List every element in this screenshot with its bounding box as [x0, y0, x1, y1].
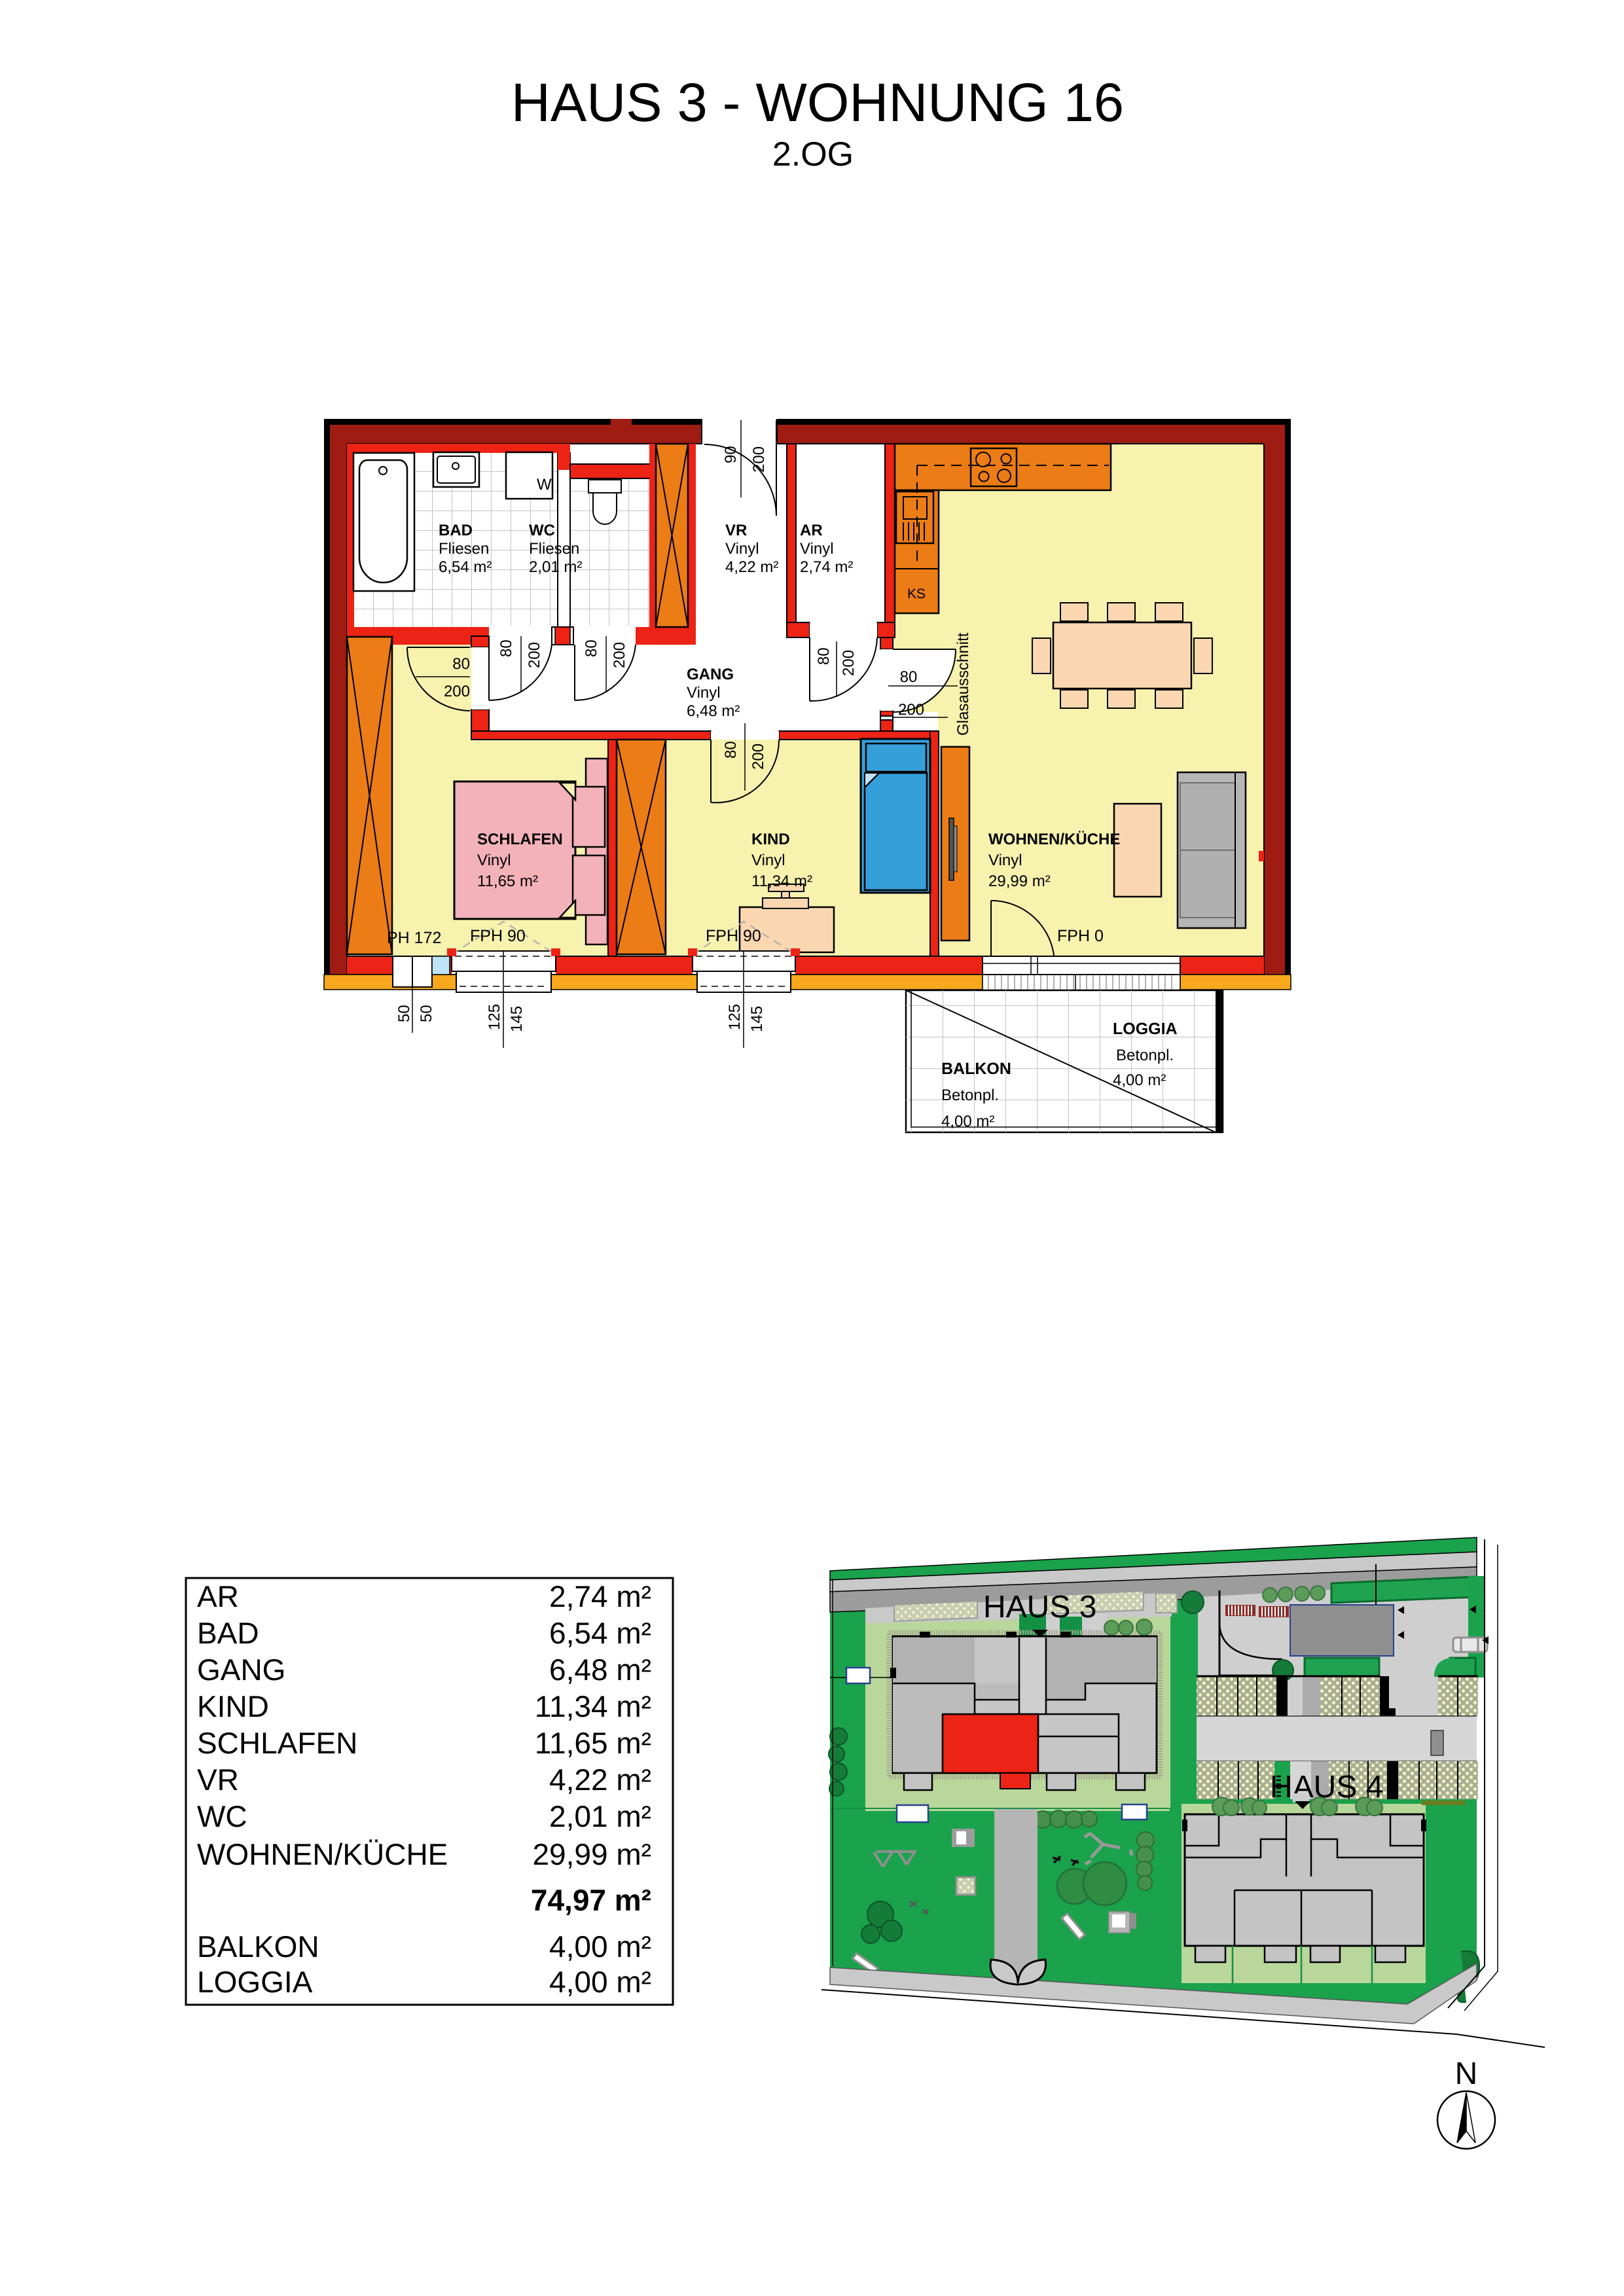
svg-text:WC: WC [529, 522, 555, 539]
svg-text:KIND: KIND [751, 831, 790, 848]
svg-text:Betonpl.: Betonpl. [941, 1086, 999, 1104]
svg-text:200: 200 [750, 446, 768, 473]
svg-text:200: 200 [444, 683, 470, 700]
svg-text:LOGGIA: LOGGIA [197, 1965, 313, 1999]
svg-text:FPH 0: FPH 0 [1057, 927, 1104, 945]
svg-text:11,65 m²: 11,65 m² [477, 872, 538, 890]
svg-text:6,48 m²: 6,48 m² [549, 1653, 651, 1687]
svg-text:4,22 m²: 4,22 m² [725, 558, 778, 576]
svg-text:4,00 m²: 4,00 m² [1113, 1071, 1166, 1089]
svg-text:BALKON: BALKON [941, 1060, 1011, 1078]
svg-text:FPH 90: FPH 90 [470, 927, 526, 945]
svg-text:4,00 m²: 4,00 m² [941, 1113, 994, 1130]
svg-text:80: 80 [497, 639, 515, 657]
svg-text:Vinyl: Vinyl [751, 852, 785, 869]
svg-text:Vinyl: Vinyl [988, 852, 1022, 869]
svg-text:74,97 m²: 74,97 m² [531, 1883, 651, 1917]
svg-text:50: 50 [418, 1005, 435, 1022]
svg-text:4,00 m²: 4,00 m² [549, 1965, 651, 1999]
svg-text:BALKON: BALKON [197, 1929, 319, 1964]
svg-text:2,01 m²: 2,01 m² [549, 1799, 651, 1833]
svg-text:KIND: KIND [197, 1689, 269, 1723]
svg-text:Vinyl: Vinyl [477, 852, 511, 869]
svg-text:PH 172: PH 172 [387, 929, 441, 947]
svg-text:80: 80 [583, 639, 600, 657]
svg-text:Vinyl: Vinyl [800, 540, 834, 558]
svg-text:6,54 m²: 6,54 m² [549, 1616, 651, 1650]
svg-text:HAUS 3: HAUS 3 [983, 1590, 1096, 1624]
svg-text:SCHLAFEN: SCHLAFEN [477, 831, 563, 848]
svg-text:29,99 m²: 29,99 m² [988, 872, 1051, 890]
svg-text:2,74 m²: 2,74 m² [800, 558, 853, 576]
svg-text:VR: VR [197, 1763, 239, 1797]
svg-text:200: 200 [898, 701, 924, 719]
svg-text:GANG: GANG [197, 1653, 285, 1687]
svg-text:200: 200 [749, 744, 767, 770]
svg-text:6,54 m²: 6,54 m² [439, 558, 492, 576]
svg-text:Betonpl.: Betonpl. [1116, 1047, 1174, 1064]
svg-text:WOHNEN/KÜCHE: WOHNEN/KÜCHE [988, 831, 1120, 848]
svg-text:200: 200 [611, 642, 628, 668]
svg-text:BAD: BAD [439, 522, 473, 539]
svg-text:Fliesen: Fliesen [529, 540, 579, 558]
svg-text:80: 80 [815, 647, 833, 665]
svg-text:BAD: BAD [197, 1616, 259, 1650]
svg-text:2,01 m²: 2,01 m² [529, 558, 582, 576]
svg-text:HAUS 3 - WOHNUNG 16: HAUS 3 - WOHNUNG 16 [511, 72, 1124, 133]
svg-text:GANG: GANG [687, 666, 734, 683]
svg-text:FPH 90: FPH 90 [706, 927, 761, 945]
svg-text:Glasausschnitt: Glasausschnitt [954, 632, 972, 736]
svg-text:AR: AR [800, 522, 823, 539]
svg-text:6,48 m²: 6,48 m² [687, 702, 740, 720]
svg-text:2,74 m²: 2,74 m² [549, 1579, 651, 1613]
svg-text:WOHNEN/KÜCHE: WOHNEN/KÜCHE [197, 1837, 448, 1871]
svg-text:145: 145 [508, 1006, 526, 1032]
svg-text:2.OG: 2.OG [772, 135, 854, 173]
svg-text:VR: VR [725, 522, 747, 539]
svg-text:11,34 m²: 11,34 m² [535, 1689, 651, 1723]
svg-text:145: 145 [748, 1006, 766, 1032]
svg-text:11,34 m²: 11,34 m² [751, 872, 812, 890]
svg-text:4,00 m²: 4,00 m² [549, 1929, 651, 1964]
svg-text:Vinyl: Vinyl [725, 540, 759, 558]
svg-text:80: 80 [900, 668, 918, 686]
svg-text:SCHLAFEN: SCHLAFEN [197, 1726, 357, 1760]
svg-text:80: 80 [722, 741, 740, 759]
svg-text:AR: AR [197, 1579, 239, 1613]
svg-text:4,22 m²: 4,22 m² [549, 1763, 651, 1797]
svg-text:N: N [1455, 2056, 1478, 2091]
svg-text:W: W [537, 476, 552, 493]
svg-text:80: 80 [452, 655, 470, 673]
svg-text:125: 125 [486, 1004, 503, 1030]
svg-text:WC: WC [197, 1799, 247, 1833]
svg-text:Fliesen: Fliesen [439, 540, 489, 558]
svg-text:Vinyl: Vinyl [687, 684, 721, 702]
svg-text:125: 125 [726, 1004, 744, 1030]
svg-text:29,99 m²: 29,99 m² [532, 1837, 651, 1871]
svg-text:200: 200 [526, 642, 543, 668]
svg-text:KS: KS [907, 586, 926, 601]
svg-text:50: 50 [395, 1005, 413, 1022]
svg-text:90: 90 [722, 446, 740, 463]
svg-text:11,65 m²: 11,65 m² [535, 1726, 651, 1760]
svg-text:LOGGIA: LOGGIA [1113, 1020, 1178, 1038]
svg-text:200: 200 [840, 650, 857, 676]
